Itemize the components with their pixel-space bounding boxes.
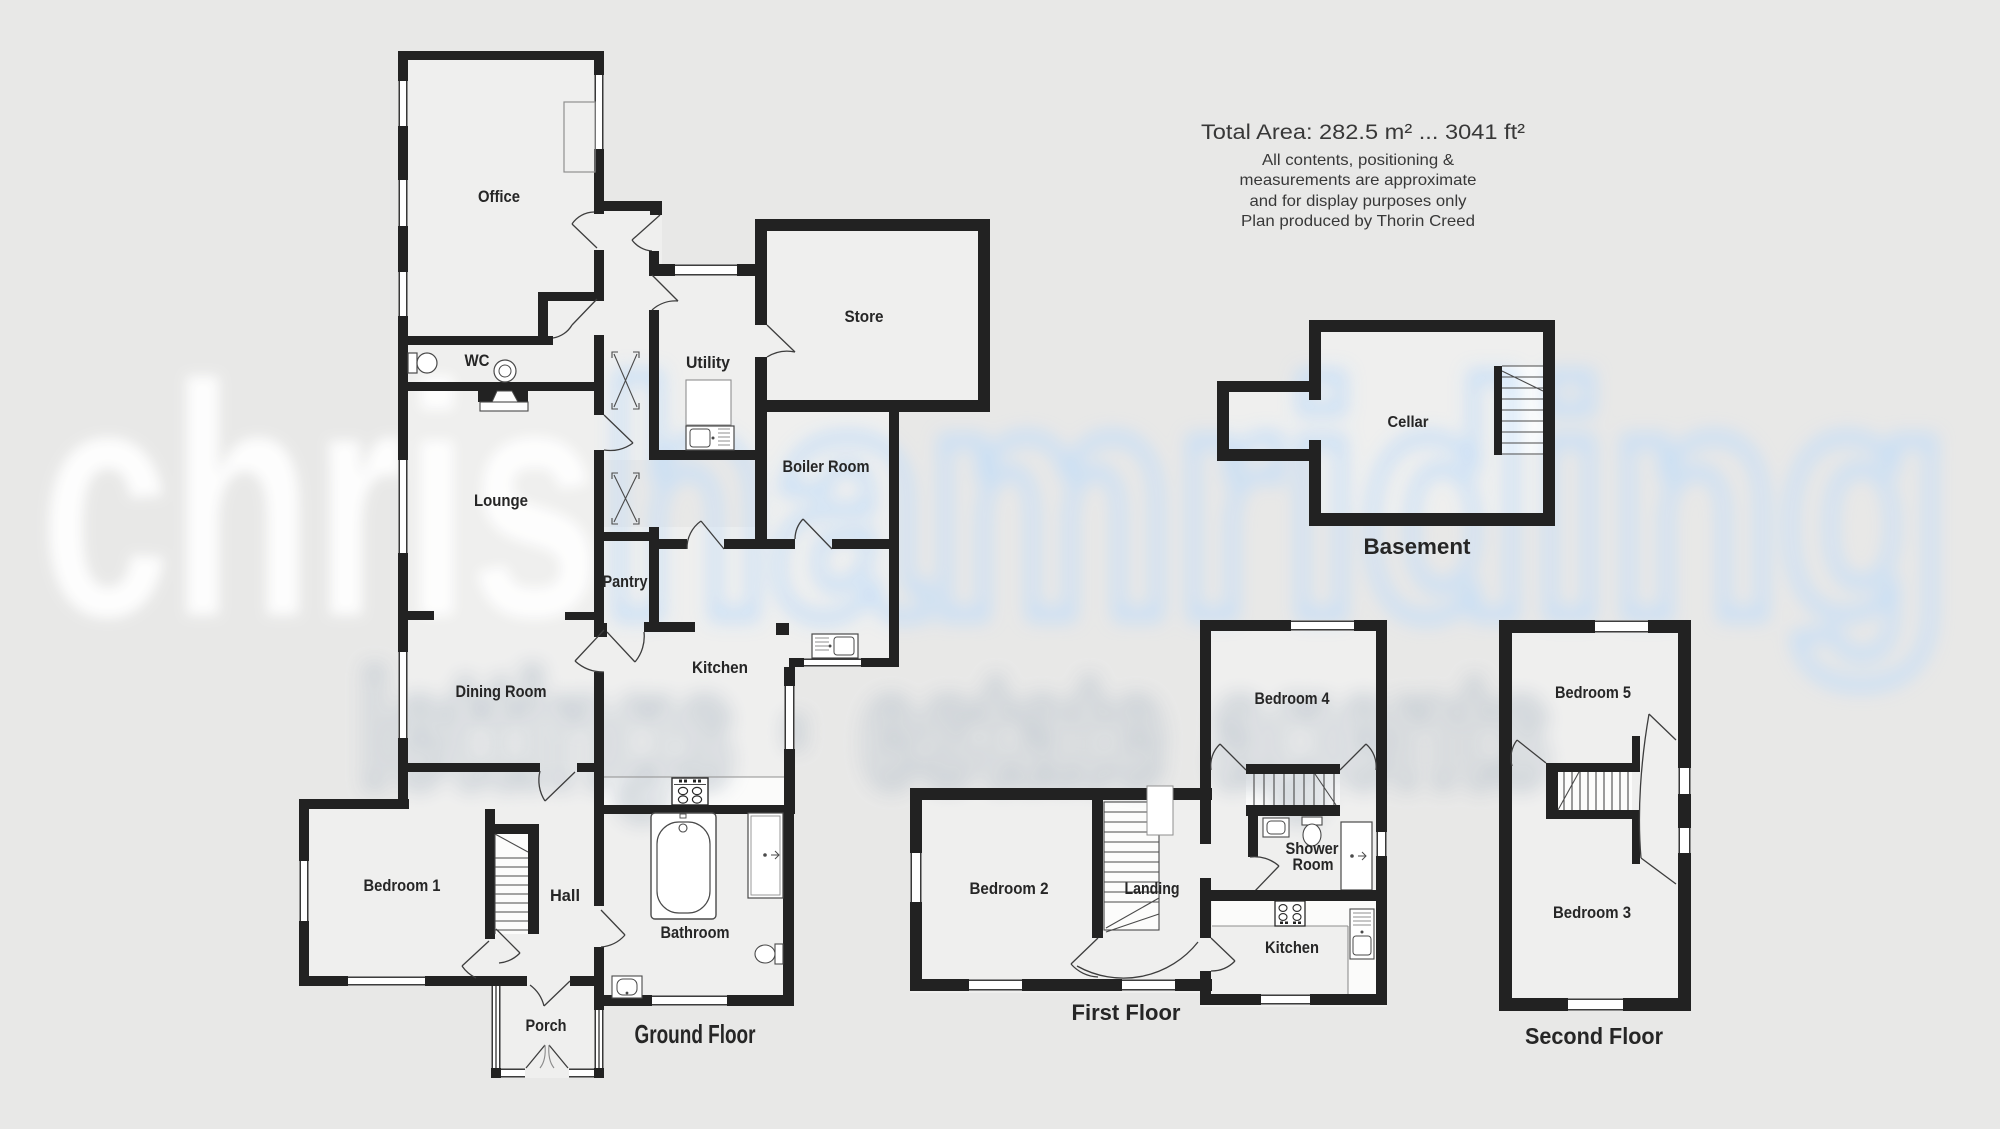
svg-text:Second Floor: Second Floor (1525, 1023, 1663, 1049)
svg-text:Lounge: Lounge (474, 491, 528, 510)
svg-text:Office: Office (478, 187, 520, 206)
svg-text:Dining Room: Dining Room (456, 682, 547, 701)
svg-text:Kitchen: Kitchen (692, 658, 748, 677)
svg-text:Landing: Landing (1125, 879, 1180, 898)
svg-text:First Floor: First Floor (1072, 1000, 1181, 1025)
svg-text:Ground Floor: Ground Floor (635, 1019, 756, 1049)
svg-text:Bedroom 3: Bedroom 3 (1553, 903, 1631, 922)
svg-text:WC: WC (465, 351, 490, 370)
svg-text:Basement: Basement (1364, 534, 1472, 559)
svg-text:and for display purposes only: and for display purposes only (1250, 193, 1467, 210)
svg-text:Kitchen: Kitchen (1265, 938, 1319, 957)
svg-text:Pantry: Pantry (603, 572, 648, 591)
svg-text:Bedroom 1: Bedroom 1 (364, 876, 441, 895)
svg-text:Boiler Room: Boiler Room (783, 457, 870, 476)
svg-text:Utility: Utility (686, 353, 730, 372)
svg-text:measurements are approximate: measurements are approximate (1240, 172, 1477, 189)
svg-text:hamriding: hamriding (600, 316, 1950, 687)
svg-text:Store: Store (845, 307, 884, 326)
svg-text:All contents, positioning &: All contents, positioning & (1262, 152, 1454, 169)
svg-text:Room: Room (1293, 855, 1334, 874)
svg-text:Cellar: Cellar (1388, 414, 1429, 431)
svg-text:Bedroom 4: Bedroom 4 (1255, 689, 1330, 708)
svg-text:Total Area: 282.5 m² ... 3041: Total Area: 282.5 m² ... 3041 ft² (1201, 120, 1525, 144)
svg-text:Bedroom 2: Bedroom 2 (970, 879, 1049, 898)
svg-text:Bedroom 5: Bedroom 5 (1555, 683, 1631, 702)
svg-text:Hall: Hall (550, 886, 580, 905)
svg-text:Porch: Porch (526, 1016, 567, 1035)
svg-text:Plan produced by Thorin Creed: Plan produced by Thorin Creed (1241, 213, 1475, 230)
svg-text:Bathroom: Bathroom (661, 923, 730, 942)
